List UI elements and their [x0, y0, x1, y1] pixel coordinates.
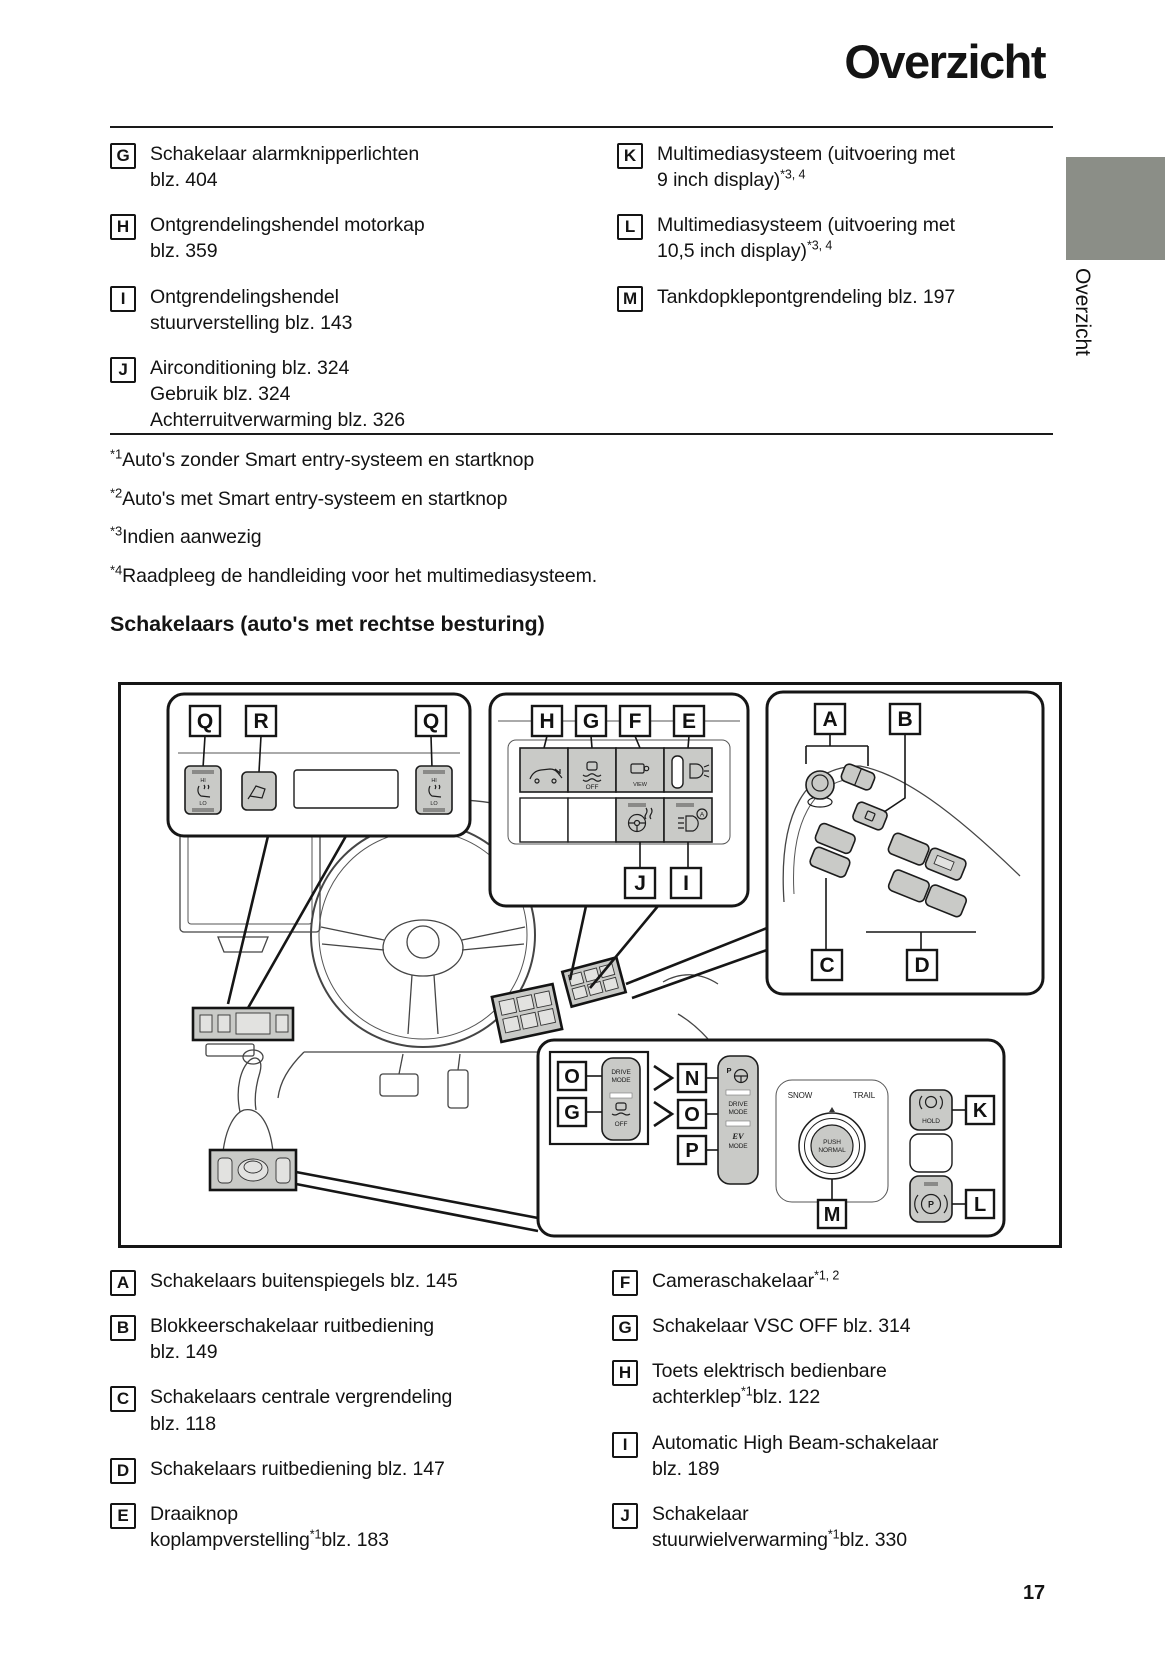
svg-text:N: N — [685, 1068, 699, 1090]
label-box-m: M — [818, 1200, 846, 1228]
bottom-list-right-column: F Cameraschakelaar*1, 2 G Schakelaar VSC… — [612, 1268, 1032, 1572]
svg-text:F: F — [629, 710, 642, 733]
svg-text:G: G — [583, 710, 599, 733]
page-title: Overzicht — [844, 34, 1045, 89]
footnote-4: *4Raadpleeg de handleiding voor het mult… — [110, 565, 910, 588]
svg-text:J: J — [634, 872, 646, 895]
svg-text:H: H — [539, 710, 554, 733]
svg-text:P: P — [685, 1140, 698, 1162]
blank-console-slot — [910, 1134, 952, 1172]
item-letter-box: F — [612, 1270, 638, 1296]
svg-text:SNOW: SNOW — [788, 1091, 813, 1100]
svg-text:P: P — [727, 1066, 732, 1075]
item-text: Schakelaar VSC OFF blz. 314 — [652, 1313, 1027, 1339]
blank-switch-slot-1 — [520, 798, 568, 842]
label-box-r: R — [246, 706, 276, 736]
svg-text:D: D — [914, 954, 929, 977]
item-text: Multimediasysteem (uitvoering met9 inch … — [657, 141, 1032, 193]
svg-text:LO: LO — [430, 801, 438, 807]
item-text: Schakelaarstuurwielverwarming*1blz. 330 — [652, 1501, 1027, 1553]
svg-text:EV: EV — [731, 1131, 745, 1141]
label-box-l: L — [966, 1190, 994, 1218]
mirror-fold-button — [242, 772, 276, 810]
label-box-g2: G — [558, 1098, 586, 1126]
blank-switch-slot-2 — [568, 798, 616, 842]
item-text: Multimediasysteem (uitvoering met10,5 in… — [657, 212, 1032, 264]
label-box-n: N — [678, 1064, 706, 1092]
label-box-q1: Q — [190, 706, 220, 736]
svg-text:I: I — [683, 872, 689, 895]
list-item-I2: I Automatic High Beam-schakelaarblz. 189 — [612, 1430, 1032, 1482]
footnotes: *1Auto's zonder Smart entry-systeem en s… — [110, 449, 910, 603]
divider-middle — [110, 433, 1053, 435]
item-letter-box: I — [612, 1432, 638, 1458]
svg-text:R: R — [253, 710, 268, 733]
parking-brake-switch: P — [910, 1176, 952, 1222]
list-item-L: L Multimediasysteem (uitvoering met10,5 … — [617, 212, 1037, 264]
item-letter-box: G — [110, 143, 136, 169]
svg-text:NORMAL: NORMAL — [818, 1147, 846, 1154]
svg-text:O: O — [684, 1104, 699, 1126]
list-item-E: E Draaiknopkoplampverstelling*1blz. 183 — [110, 1501, 510, 1553]
page-number: 17 — [1023, 1582, 1045, 1605]
svg-text:P: P — [928, 1200, 934, 1210]
svg-text:HI: HI — [431, 778, 437, 784]
svg-text:OFF: OFF — [586, 784, 599, 791]
svg-text:O: O — [564, 1066, 579, 1088]
power-tailgate-button — [520, 748, 568, 792]
list-item-J2: J Schakelaarstuurwielverwarming*1blz. 33… — [612, 1501, 1032, 1553]
divider-top — [110, 126, 1053, 128]
automatic-high-beam-button: A — [664, 798, 712, 842]
blank-display-slot — [294, 770, 398, 808]
footnote-1: *1Auto's zonder Smart entry-systeem en s… — [110, 449, 910, 472]
seat-heater-button-left: HI LO — [185, 766, 221, 814]
label-box-k: K — [966, 1096, 994, 1124]
svg-text:VIEW: VIEW — [633, 782, 648, 788]
svg-text:TRAIL: TRAIL — [853, 1091, 876, 1100]
chapter-tab-label: Overzicht — [1070, 268, 1094, 356]
seat-heater-button-right: HI LO — [416, 766, 452, 814]
item-letter-box: K — [617, 143, 643, 169]
svg-text:M: M — [824, 1204, 841, 1226]
item-text: Schakelaar alarmknipperlichtenblz. 404 — [150, 141, 470, 193]
svg-text:Q: Q — [197, 710, 213, 733]
steering-wheel-heater-button — [616, 798, 664, 842]
console-knob-panel-art — [210, 1150, 296, 1190]
svg-text:PUSH: PUSH — [823, 1139, 841, 1146]
label-box-c: C — [812, 950, 842, 980]
item-letter-box: J — [612, 1503, 638, 1529]
svg-text:MODE: MODE — [728, 1109, 748, 1116]
item-letter-box: G — [612, 1315, 638, 1341]
list-item-H: H Ontgrendelingshendel motorkapblz. 359 — [110, 212, 490, 264]
label-box-b: B — [890, 704, 920, 734]
list-item-H2: H Toets elektrisch bedienbareachterklep*… — [612, 1358, 1032, 1410]
label-box-q2: Q — [416, 706, 446, 736]
section-heading: Schakelaars (auto's met rechtse besturin… — [110, 612, 545, 637]
svg-text:Q: Q — [423, 710, 439, 733]
item-letter-box: L — [617, 214, 643, 240]
item-letter-box: H — [612, 1360, 638, 1386]
list-item-D: D Schakelaars ruitbediening blz. 147 — [110, 1456, 510, 1482]
footnote-2: *2Auto's met Smart entry-systeem en star… — [110, 488, 910, 511]
item-letter-box: C — [110, 1386, 136, 1412]
svg-text:DRIVE: DRIVE — [728, 1101, 748, 1108]
footnote-3: *3Indien aanwezig — [110, 526, 910, 549]
label-box-o1: O — [558, 1062, 586, 1090]
item-text: Tankdopklepontgrendeling blz. 197 — [657, 284, 1032, 310]
mode-switch-strip: P DRIVE MODE EV MODE — [718, 1056, 758, 1184]
list-item-B: B Blokkeerschakelaar ruitbedieningblz. 1… — [110, 1313, 510, 1365]
chapter-tab — [1066, 157, 1165, 260]
svg-text:L: L — [974, 1194, 986, 1216]
item-letter-box: D — [110, 1458, 136, 1484]
drive-mode-vsc-strip: DRIVE MODE OFF — [602, 1058, 640, 1140]
label-box-f: F — [620, 706, 650, 736]
item-text: Airconditioning blz. 324Gebruik blz. 324… — [150, 355, 490, 433]
list-item-G: G Schakelaar alarmknipperlichtenblz. 404 — [110, 141, 490, 193]
svg-text:HI: HI — [200, 778, 206, 784]
item-text: Toets elektrisch bedienbareachterklep*1b… — [652, 1358, 1027, 1410]
svg-text:G: G — [564, 1102, 579, 1124]
item-letter-box: I — [110, 286, 136, 312]
svg-text:E: E — [682, 710, 696, 733]
svg-text:DRIVE: DRIVE — [611, 1069, 631, 1076]
list-item-K: K Multimediasysteem (uitvoering met9 inc… — [617, 141, 1037, 193]
item-letter-box: M — [617, 286, 643, 312]
item-letter-box: H — [110, 214, 136, 240]
item-text: Schakelaars ruitbediening blz. 147 — [150, 1456, 510, 1482]
list-item-G2: G Schakelaar VSC OFF blz. 314 — [612, 1313, 1032, 1339]
svg-text:HOLD: HOLD — [922, 1118, 940, 1125]
item-text: Cameraschakelaar*1, 2 — [652, 1268, 1027, 1294]
label-box-d: D — [907, 950, 937, 980]
camera-view-button: VIEW — [616, 748, 664, 792]
svg-text:B: B — [897, 708, 912, 731]
item-text: Blokkeerschakelaar ruitbedieningblz. 149 — [150, 1313, 510, 1365]
svg-text:OFF: OFF — [615, 1121, 628, 1128]
list-item-I: I Ontgrendelingshendelstuurverstelling b… — [110, 284, 490, 336]
label-box-i: I — [671, 868, 701, 898]
svg-text:MODE: MODE — [728, 1143, 748, 1150]
label-box-p: P — [678, 1136, 706, 1164]
svg-text:MODE: MODE — [611, 1077, 631, 1084]
list-item-A: A Schakelaars buitenspiegels blz. 145 — [110, 1268, 510, 1294]
svg-text:K: K — [973, 1100, 988, 1122]
item-letter-box: B — [110, 1315, 136, 1341]
headlight-leveling-dial — [664, 748, 712, 792]
label-box-o2: O — [678, 1100, 706, 1128]
top-list-left-column: G Schakelaar alarmknipperlichtenblz. 404… — [110, 141, 490, 452]
item-letter-box: J — [110, 357, 136, 383]
item-text: Automatic High Beam-schakelaarblz. 189 — [652, 1430, 1027, 1482]
switch-location-diagram: Q R Q HI LO HI LO — [118, 682, 1062, 1248]
list-item-J: J Airconditioning blz. 324Gebruik blz. 3… — [110, 355, 490, 433]
list-item-F: F Cameraschakelaar*1, 2 — [612, 1268, 1032, 1294]
label-box-e: E — [674, 706, 704, 736]
list-item-M: M Tankdopklepontgrendeling blz. 197 — [617, 284, 1037, 310]
bottom-list-left-column: A Schakelaars buitenspiegels blz. 145 B … — [110, 1268, 510, 1572]
list-item-C: C Schakelaars centrale vergrendelingblz.… — [110, 1384, 510, 1436]
item-letter-box: E — [110, 1503, 136, 1529]
label-box-a: A — [815, 704, 845, 734]
label-box-h: H — [532, 706, 562, 736]
label-box-j: J — [625, 868, 655, 898]
item-text: Schakelaars buitenspiegels blz. 145 — [150, 1268, 510, 1294]
svg-text:C: C — [819, 954, 834, 977]
top-list-right-column: K Multimediasysteem (uitvoering met9 inc… — [617, 141, 1037, 329]
item-text: Draaiknopkoplampverstelling*1blz. 183 — [150, 1501, 510, 1553]
item-text: Ontgrendelingshendel motorkapblz. 359 — [150, 212, 470, 264]
vsc-off-button: OFF — [568, 748, 616, 792]
item-letter-box: A — [110, 1270, 136, 1296]
svg-text:LO: LO — [199, 801, 207, 807]
brake-hold-button: HOLD — [910, 1090, 952, 1130]
item-text: Ontgrendelingshendelstuurverstelling blz… — [150, 284, 470, 336]
svg-text:A: A — [822, 708, 837, 731]
label-box-g: G — [576, 706, 606, 736]
item-text: Schakelaars centrale vergrendelingblz. 1… — [150, 1384, 510, 1436]
